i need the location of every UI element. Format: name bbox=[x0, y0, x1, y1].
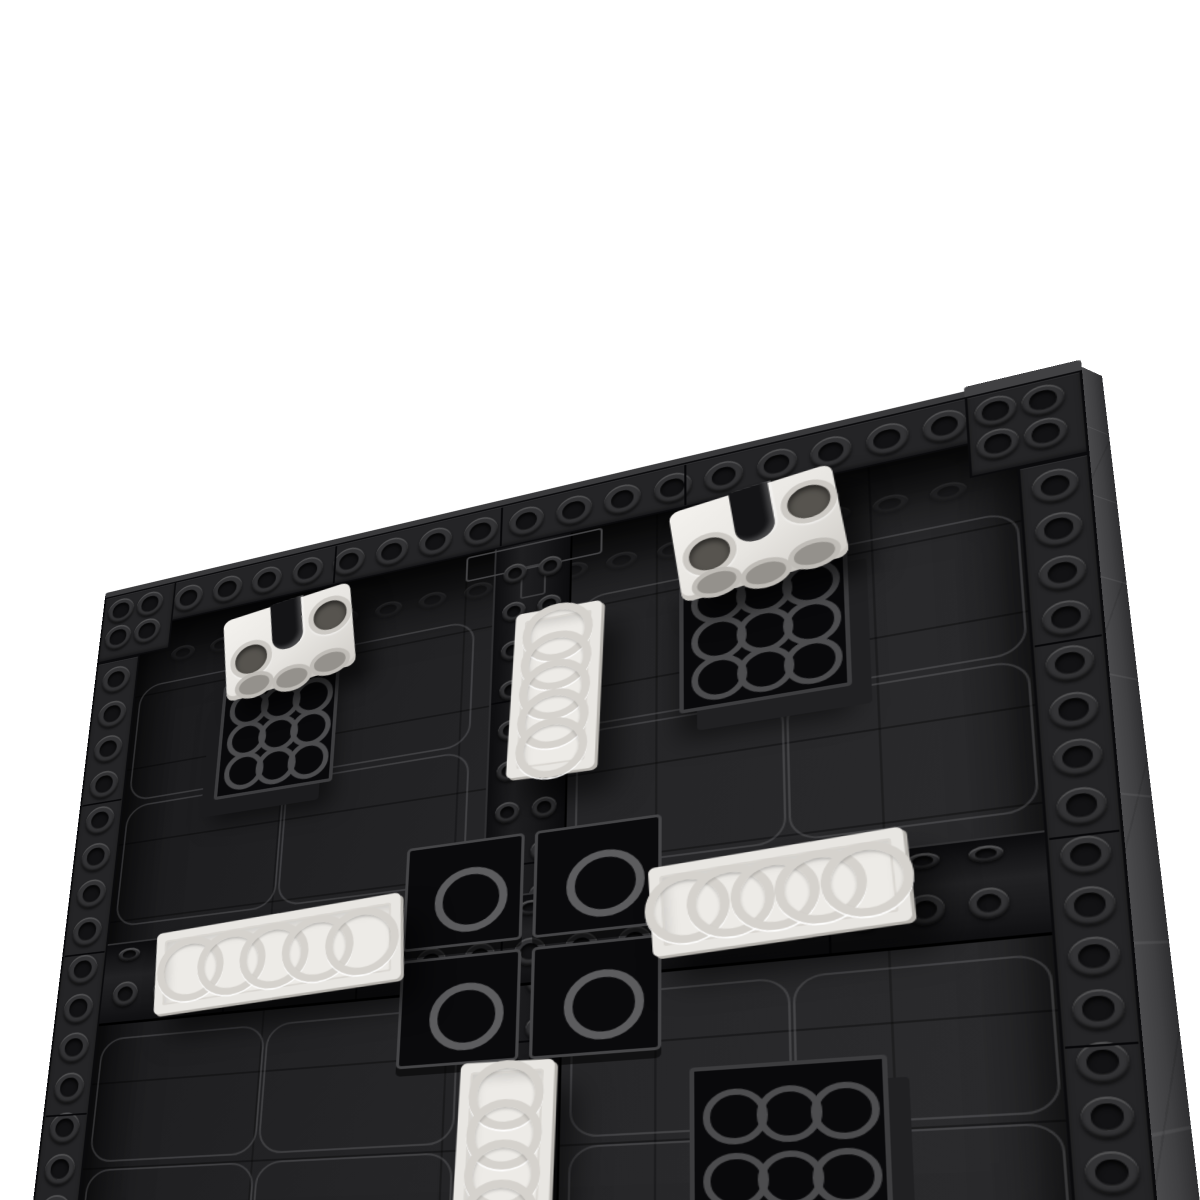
stud bbox=[170, 643, 195, 663]
molded-groove bbox=[114, 781, 284, 928]
stud bbox=[76, 878, 108, 910]
stud bbox=[84, 804, 115, 836]
stud bbox=[57, 1031, 90, 1064]
stud bbox=[133, 616, 162, 646]
crossing-tile bbox=[532, 814, 661, 938]
molded-groove bbox=[74, 1162, 255, 1200]
stud bbox=[111, 980, 139, 1008]
stud bbox=[1083, 1150, 1141, 1195]
stud bbox=[463, 580, 492, 602]
stud bbox=[67, 953, 99, 985]
stud bbox=[1067, 934, 1122, 978]
bracket-u-notch bbox=[728, 481, 777, 546]
anti-stud-ring bbox=[433, 862, 508, 935]
stud bbox=[136, 589, 165, 619]
stud bbox=[968, 885, 1011, 920]
stud bbox=[80, 841, 112, 873]
stud bbox=[604, 481, 641, 518]
stud bbox=[1020, 380, 1065, 419]
stud bbox=[968, 844, 1004, 864]
stud bbox=[93, 733, 124, 765]
crossing-tile-group bbox=[396, 815, 655, 1064]
crossing-tile bbox=[402, 833, 525, 953]
stud bbox=[418, 524, 452, 559]
stud bbox=[606, 549, 637, 572]
brick-seam bbox=[684, 465, 686, 506]
pin-hole-icon bbox=[777, 473, 841, 531]
stud bbox=[53, 1071, 86, 1104]
stud bbox=[251, 564, 283, 597]
stud bbox=[1034, 508, 1084, 550]
stud bbox=[1055, 784, 1108, 827]
white-plate-bottom-vertical bbox=[448, 1058, 555, 1200]
stud bbox=[495, 800, 520, 824]
stud bbox=[872, 492, 908, 517]
anti-stud-ring bbox=[286, 738, 330, 782]
stud bbox=[1023, 414, 1069, 453]
ring-block-bottom-right bbox=[689, 1054, 896, 1200]
stud bbox=[509, 503, 545, 539]
stud bbox=[1048, 688, 1100, 731]
stud bbox=[531, 795, 556, 820]
stud bbox=[929, 479, 967, 504]
stud bbox=[865, 419, 909, 459]
anti-stud-ring bbox=[563, 965, 644, 1042]
stud bbox=[107, 596, 135, 626]
white-plate-center-vertical bbox=[506, 600, 603, 779]
crossing-tile bbox=[396, 949, 522, 1070]
anti-stud-ring bbox=[566, 845, 645, 921]
stud bbox=[976, 424, 1020, 463]
stud bbox=[38, 1194, 72, 1200]
stud bbox=[1063, 883, 1117, 927]
stud bbox=[1071, 987, 1127, 1031]
stud bbox=[88, 768, 119, 800]
stud bbox=[418, 589, 447, 610]
stud bbox=[1031, 465, 1080, 507]
stud bbox=[1051, 735, 1104, 778]
pin-hole-icon bbox=[307, 590, 353, 640]
stud bbox=[1044, 642, 1095, 685]
panel-rear-face bbox=[22, 370, 1165, 1200]
stud bbox=[1041, 596, 1092, 639]
stud bbox=[118, 947, 141, 963]
stud bbox=[291, 554, 324, 587]
stud bbox=[332, 544, 365, 578]
bracket-u-notch bbox=[270, 596, 303, 653]
stud bbox=[556, 492, 592, 528]
stud bbox=[71, 915, 103, 947]
stud bbox=[43, 1153, 76, 1186]
stud bbox=[974, 392, 1018, 431]
stud bbox=[810, 432, 852, 471]
stud bbox=[1059, 833, 1113, 877]
stud bbox=[101, 664, 131, 696]
stud bbox=[173, 582, 204, 614]
stud bbox=[1079, 1095, 1136, 1139]
anti-stud-ring bbox=[428, 979, 505, 1053]
stud bbox=[375, 535, 409, 569]
stud bbox=[374, 599, 402, 620]
stud bbox=[922, 406, 967, 446]
anti-stud-ring bbox=[810, 1080, 880, 1141]
anti-stud-ring bbox=[812, 1146, 883, 1200]
stud bbox=[1037, 551, 1087, 593]
stud bbox=[211, 573, 242, 606]
molded-groove bbox=[89, 1024, 266, 1163]
crossing-tile bbox=[529, 934, 662, 1060]
stud bbox=[463, 514, 498, 549]
stud bbox=[104, 622, 133, 652]
molded-groove bbox=[246, 1152, 453, 1200]
stud bbox=[62, 992, 94, 1025]
stud bbox=[97, 698, 128, 730]
scene bbox=[0, 0, 1200, 1200]
brick-seam bbox=[500, 507, 503, 546]
